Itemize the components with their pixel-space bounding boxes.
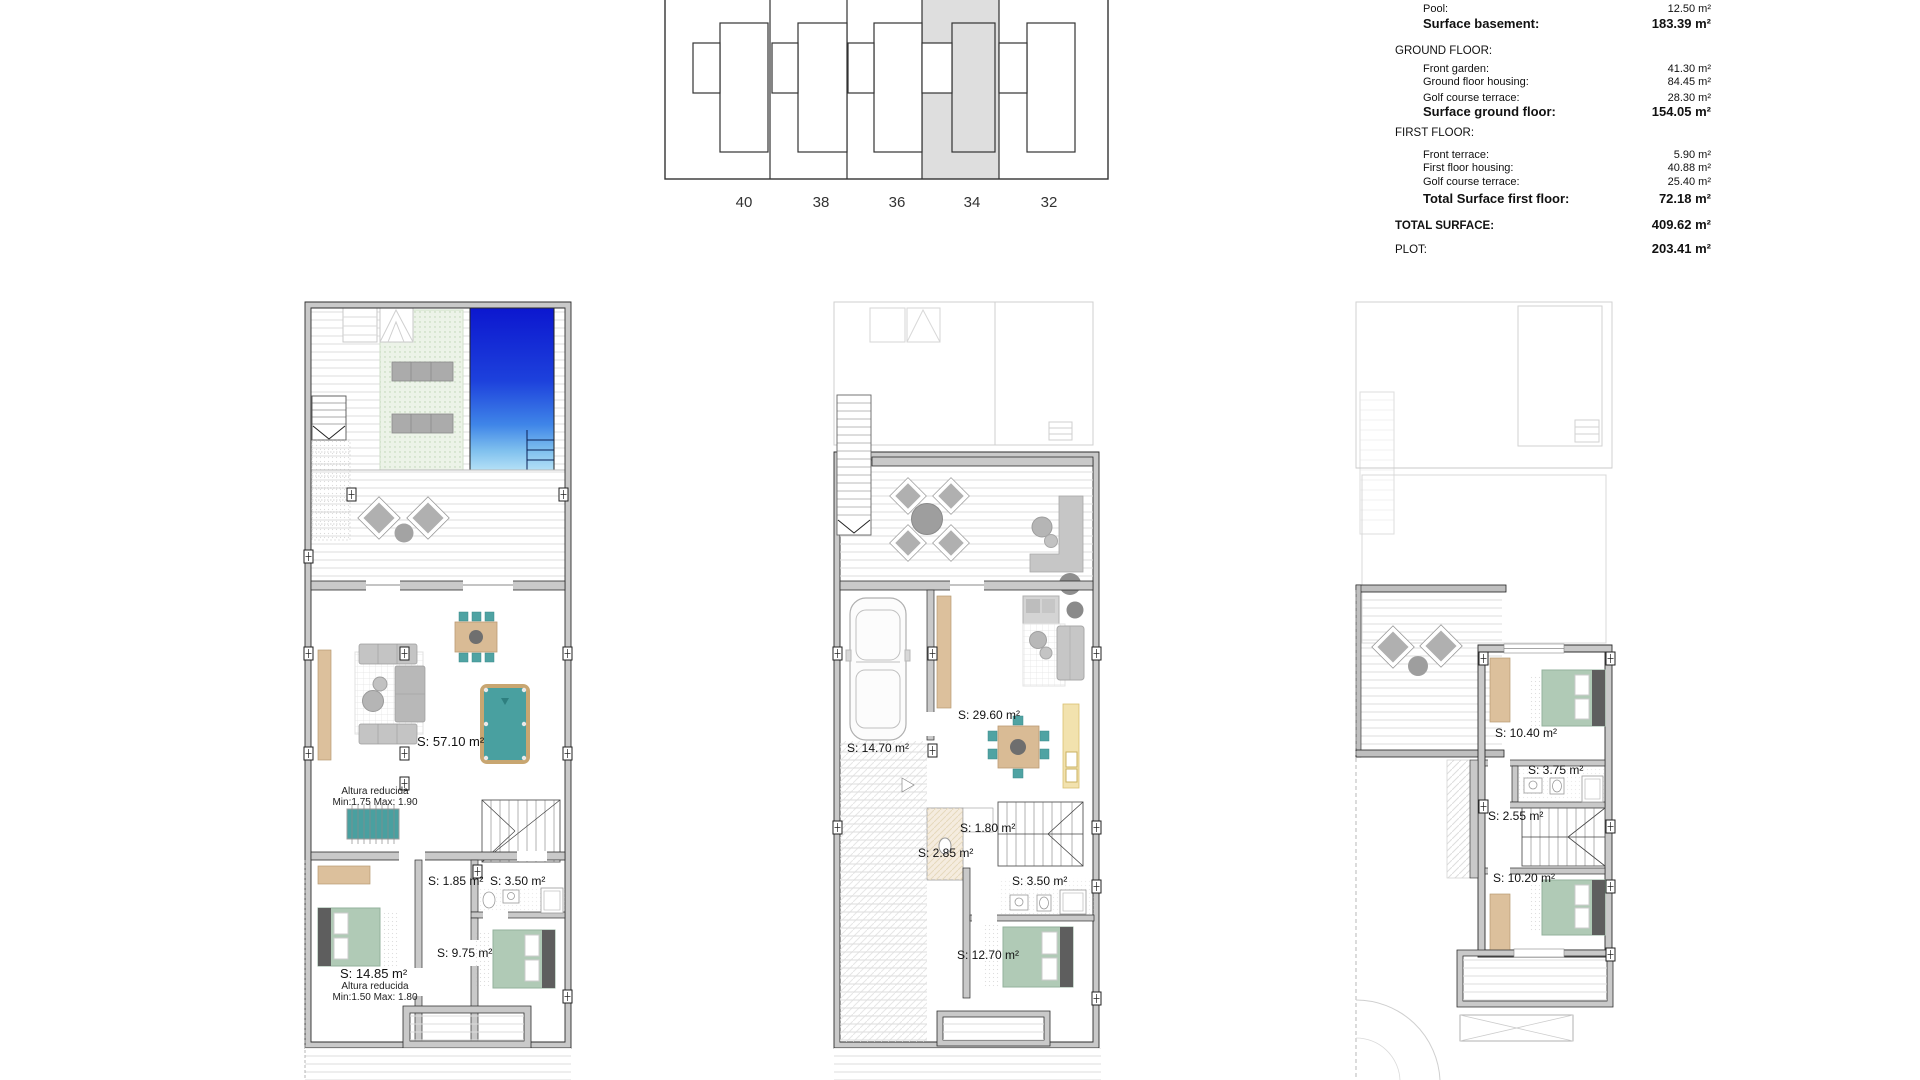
hall-wardrobe <box>937 596 951 708</box>
bed-left <box>318 908 399 968</box>
swimming-pool <box>470 308 554 470</box>
area-label-corridor: S: 9.75 m² <box>437 946 492 960</box>
area-label-garage: S: 14.70 m² <box>847 741 909 755</box>
table-section-first-floor: FIRST FLOOR: <box>1395 127 1711 139</box>
upper-floor-ghost-outline <box>834 302 1093 445</box>
foosball-table <box>347 804 399 844</box>
sofa-set <box>355 644 425 744</box>
table-row-surface-ground-floor: Surface ground floor:154.05 m² <box>1395 104 1711 119</box>
reduced-height-note-1: Altura reducidaMin:1.75 Max: 1.90 <box>332 786 418 808</box>
table-section-ground-floor: GROUND FLOOR: <box>1395 45 1711 57</box>
unit-number-38: 38 <box>813 194 830 211</box>
wc-room <box>927 808 993 880</box>
table-row-surface-basement: Surface basement:183.39 m² <box>1395 16 1711 31</box>
driveway <box>840 741 927 1042</box>
table-row-plot: PLOT:203.41 m² <box>1395 241 1711 256</box>
table-row: Golf course terrace:25.40 m² <box>1395 176 1711 188</box>
table-row: Front terrace:5.90 m² <box>1395 149 1711 161</box>
area-label-living: S: 29.60 m² <box>958 708 1020 722</box>
table-row: Ground floor housing:84.45 m² <box>1395 76 1711 88</box>
area-label-basement-bedroom: S: 14.85 m² <box>340 966 407 981</box>
area-label-first-bath: S: 3.75 m² <box>1528 763 1583 777</box>
front-garden <box>834 1048 1101 1080</box>
golf-course-balcony <box>1457 949 1613 1007</box>
area-label-store: S: 1.85 m² <box>428 874 483 888</box>
table-row: Golf course terrace:28.30 m² <box>1395 92 1711 104</box>
floor-plan-sheet: 40 38 36 34 32 Golf course terrace:34.10… <box>0 0 1920 1080</box>
unit-number-36: 36 <box>889 194 906 211</box>
area-label-bedroom2: S: 10.20 m² <box>1493 871 1555 885</box>
area-label-ground-bedroom: S: 12.70 m² <box>957 948 1019 962</box>
area-label-hall: S: 2.85 m² <box>918 846 973 860</box>
kitchen-counter <box>1063 704 1079 788</box>
reduced-height-note-2: Altura reducidaMin:1.50 Max: 1.80 <box>330 981 420 1003</box>
unit-number-34: 34 <box>964 194 981 211</box>
billiard-table <box>482 686 528 762</box>
garage-wall <box>926 590 935 740</box>
bed-bedroom2 <box>1530 880 1605 935</box>
bed-bedroom1 <box>1530 670 1605 726</box>
surface-area-table: Golf course terrace:34.10 m² Pool:12.50 … <box>1395 0 1711 275</box>
table-row: First floor housing:40.88 m² <box>1395 162 1711 174</box>
dining-table <box>455 612 497 662</box>
area-label-first-hall: S: 2.55 m² <box>1488 809 1543 823</box>
dining-table <box>988 716 1049 778</box>
side-table <box>1408 656 1428 676</box>
dresser <box>318 866 370 884</box>
area-label-main-room: S: 57.10 m² <box>417 734 484 749</box>
area-label-bedroom1: S: 10.40 m² <box>1495 726 1557 740</box>
interior-wall <box>311 580 565 591</box>
area-label-ground-bath: S: 3.50 m² <box>1012 874 1067 888</box>
first-floor-plan <box>1354 300 1620 1080</box>
side-table <box>395 524 414 543</box>
area-label-basement-bath: S: 3.50 m² <box>490 874 545 888</box>
site-plan-diagram: 40 38 36 34 32 <box>660 0 1120 215</box>
wardrobe-bedroom2 <box>1490 894 1510 952</box>
staircase <box>312 396 346 440</box>
kitchen-and-sofa <box>1023 596 1084 686</box>
entry-patio <box>937 1011 1050 1046</box>
stair-void-dashed <box>312 440 350 540</box>
ground-floor-plan <box>832 300 1103 1080</box>
unit-number-40: 40 <box>736 194 753 211</box>
unit-number-32: 32 <box>1041 194 1058 211</box>
light-well-patio <box>403 1006 531 1048</box>
entry-canopy <box>1460 1015 1573 1041</box>
area-label-wc: S: 1.80 m² <box>960 821 1015 835</box>
car <box>846 598 910 740</box>
table-row-total-first-floor: Total Surface first floor:72.18 m² <box>1395 191 1711 206</box>
side-passage <box>1447 760 1478 878</box>
bathroom-fixtures <box>479 888 565 913</box>
table-row: Pool:12.50 m² <box>1395 3 1711 15</box>
interior-wall <box>840 580 1093 591</box>
front-garden-deck <box>305 1048 571 1080</box>
wardrobe-bedroom1 <box>1490 658 1510 722</box>
table-row: Front garden:41.30 m² <box>1395 63 1711 75</box>
basement-floor-plan <box>303 300 573 1080</box>
sideboard <box>318 650 331 760</box>
table-row-total-surface: TOTAL SURFACE:409.62 m² <box>1395 217 1711 232</box>
staircase <box>837 395 871 535</box>
table-row: Golf course terrace:34.10 m² <box>1395 0 1711 2</box>
